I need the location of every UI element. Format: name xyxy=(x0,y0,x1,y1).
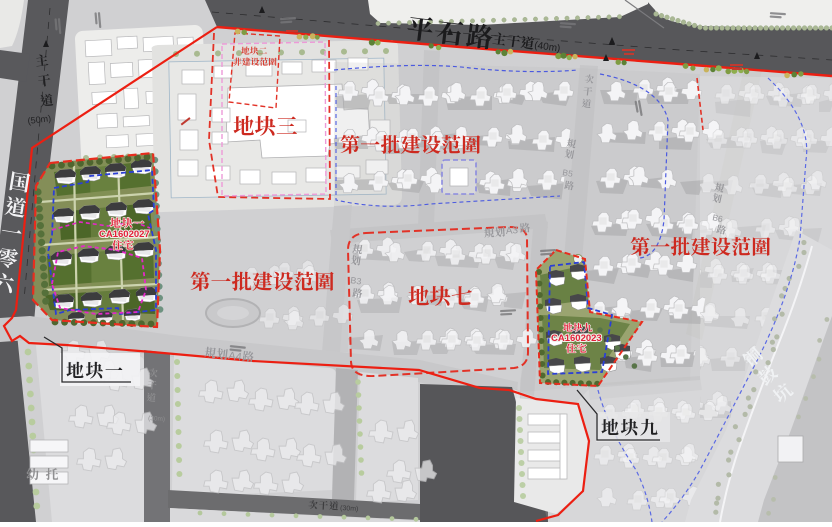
svg-text:CA1602023: CA1602023 xyxy=(551,333,602,344)
svg-text:A4: A4 xyxy=(228,350,243,364)
svg-text:B5: B5 xyxy=(562,167,574,179)
svg-text:A3: A3 xyxy=(505,225,518,237)
svg-text:B3: B3 xyxy=(350,275,362,286)
svg-text:CA1602027: CA1602027 xyxy=(99,229,150,240)
svg-text:(30m): (30m) xyxy=(148,415,165,423)
svg-text:(30m): (30m) xyxy=(340,505,359,513)
